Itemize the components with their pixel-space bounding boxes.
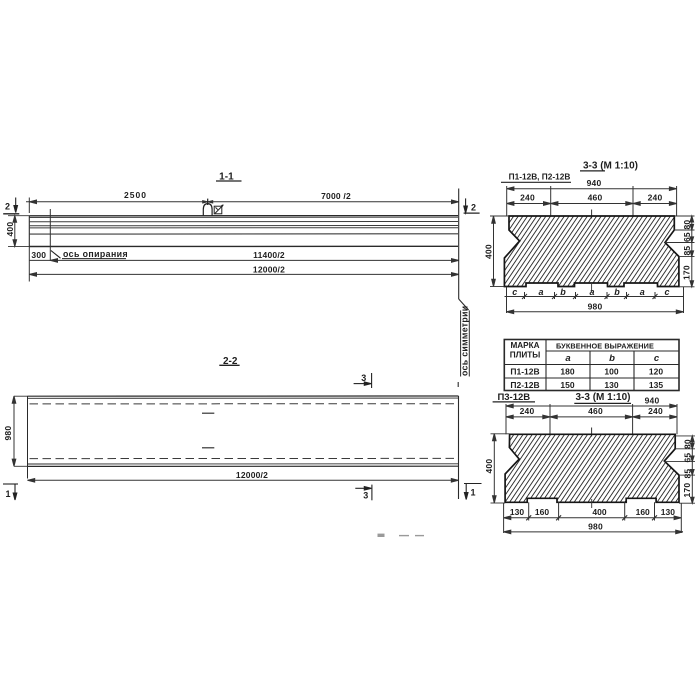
svg-text:240: 240: [520, 406, 535, 416]
svg-text:460: 460: [588, 193, 603, 203]
svg-text:400: 400: [592, 507, 606, 517]
svg-text:980: 980: [588, 302, 603, 312]
svg-text:100: 100: [604, 367, 618, 377]
svg-text:80: 80: [683, 439, 693, 449]
svg-text:a: a: [640, 287, 645, 297]
svg-text:400: 400: [484, 244, 494, 259]
svg-text:7000 /2: 7000 /2: [321, 191, 351, 201]
svg-text:170: 170: [682, 265, 692, 280]
svg-text:1: 1: [470, 488, 475, 498]
svg-text:2: 2: [5, 202, 10, 212]
svg-text:150: 150: [560, 380, 574, 390]
svg-text:240: 240: [648, 193, 663, 203]
svg-text:980: 980: [3, 426, 13, 441]
svg-text:П2-12В: П2-12В: [510, 380, 539, 390]
svg-text:c: c: [654, 353, 660, 364]
svg-text:400: 400: [5, 222, 15, 237]
svg-text:85: 85: [683, 469, 693, 479]
svg-text:12000/2: 12000/2: [253, 264, 285, 274]
svg-text:b: b: [609, 353, 615, 364]
svg-text:160: 160: [535, 507, 549, 517]
svg-text:130: 130: [661, 507, 675, 517]
svg-text:400: 400: [484, 459, 494, 474]
svg-text:П1-12В: П1-12В: [510, 367, 539, 377]
svg-text:ПЛИТЫ: ПЛИТЫ: [510, 351, 541, 360]
svg-text:a: a: [565, 353, 570, 364]
svg-text:65: 65: [682, 232, 692, 242]
svg-text:МАРКА: МАРКА: [510, 341, 539, 350]
svg-text:b: b: [614, 287, 620, 297]
svg-text:940: 940: [587, 178, 602, 188]
svg-text:c: c: [512, 287, 517, 297]
svg-text:ось опирания: ось опирания: [63, 249, 128, 259]
svg-text:a: a: [538, 287, 543, 297]
svg-text:240: 240: [648, 406, 663, 416]
svg-text:П1-12В, П2-12В: П1-12В, П2-12В: [509, 172, 571, 182]
svg-text:3-3 (М 1:10): 3-3 (М 1:10): [583, 161, 638, 172]
svg-text:БУКВЕННОЕ ВЫРАЖЕНИЕ: БУКВЕННОЕ ВЫРАЖЕНИЕ: [556, 342, 654, 351]
svg-text:135: 135: [649, 380, 663, 390]
svg-text:120: 120: [649, 367, 663, 377]
svg-text:3: 3: [363, 491, 368, 501]
svg-text:80: 80: [682, 220, 692, 230]
svg-text:980: 980: [588, 522, 603, 532]
svg-text:a: a: [589, 287, 594, 297]
svg-text:c: c: [664, 287, 669, 297]
svg-text:170: 170: [682, 483, 692, 498]
svg-text:12000/2: 12000/2: [236, 470, 268, 480]
svg-text:240: 240: [520, 193, 535, 203]
svg-text:300: 300: [31, 250, 46, 260]
svg-text:2: 2: [471, 203, 476, 213]
svg-text:П3-12В: П3-12В: [497, 392, 530, 403]
svg-text:b: b: [560, 287, 566, 297]
svg-text:2500: 2500: [124, 190, 147, 200]
svg-text:180: 180: [560, 367, 574, 377]
svg-text:160: 160: [636, 507, 650, 517]
svg-text:11400/2: 11400/2: [253, 250, 285, 260]
svg-text:460: 460: [588, 406, 603, 416]
svg-text:130: 130: [510, 507, 524, 517]
svg-text:940: 940: [645, 396, 660, 406]
svg-text:65: 65: [683, 453, 693, 463]
svg-text:130: 130: [604, 380, 618, 390]
svg-text:85: 85: [682, 246, 692, 256]
svg-text:1: 1: [5, 489, 10, 499]
svg-text:ось симметрии: ось симметрии: [460, 306, 470, 377]
svg-text:3-3 (М 1:10): 3-3 (М 1:10): [575, 392, 630, 403]
